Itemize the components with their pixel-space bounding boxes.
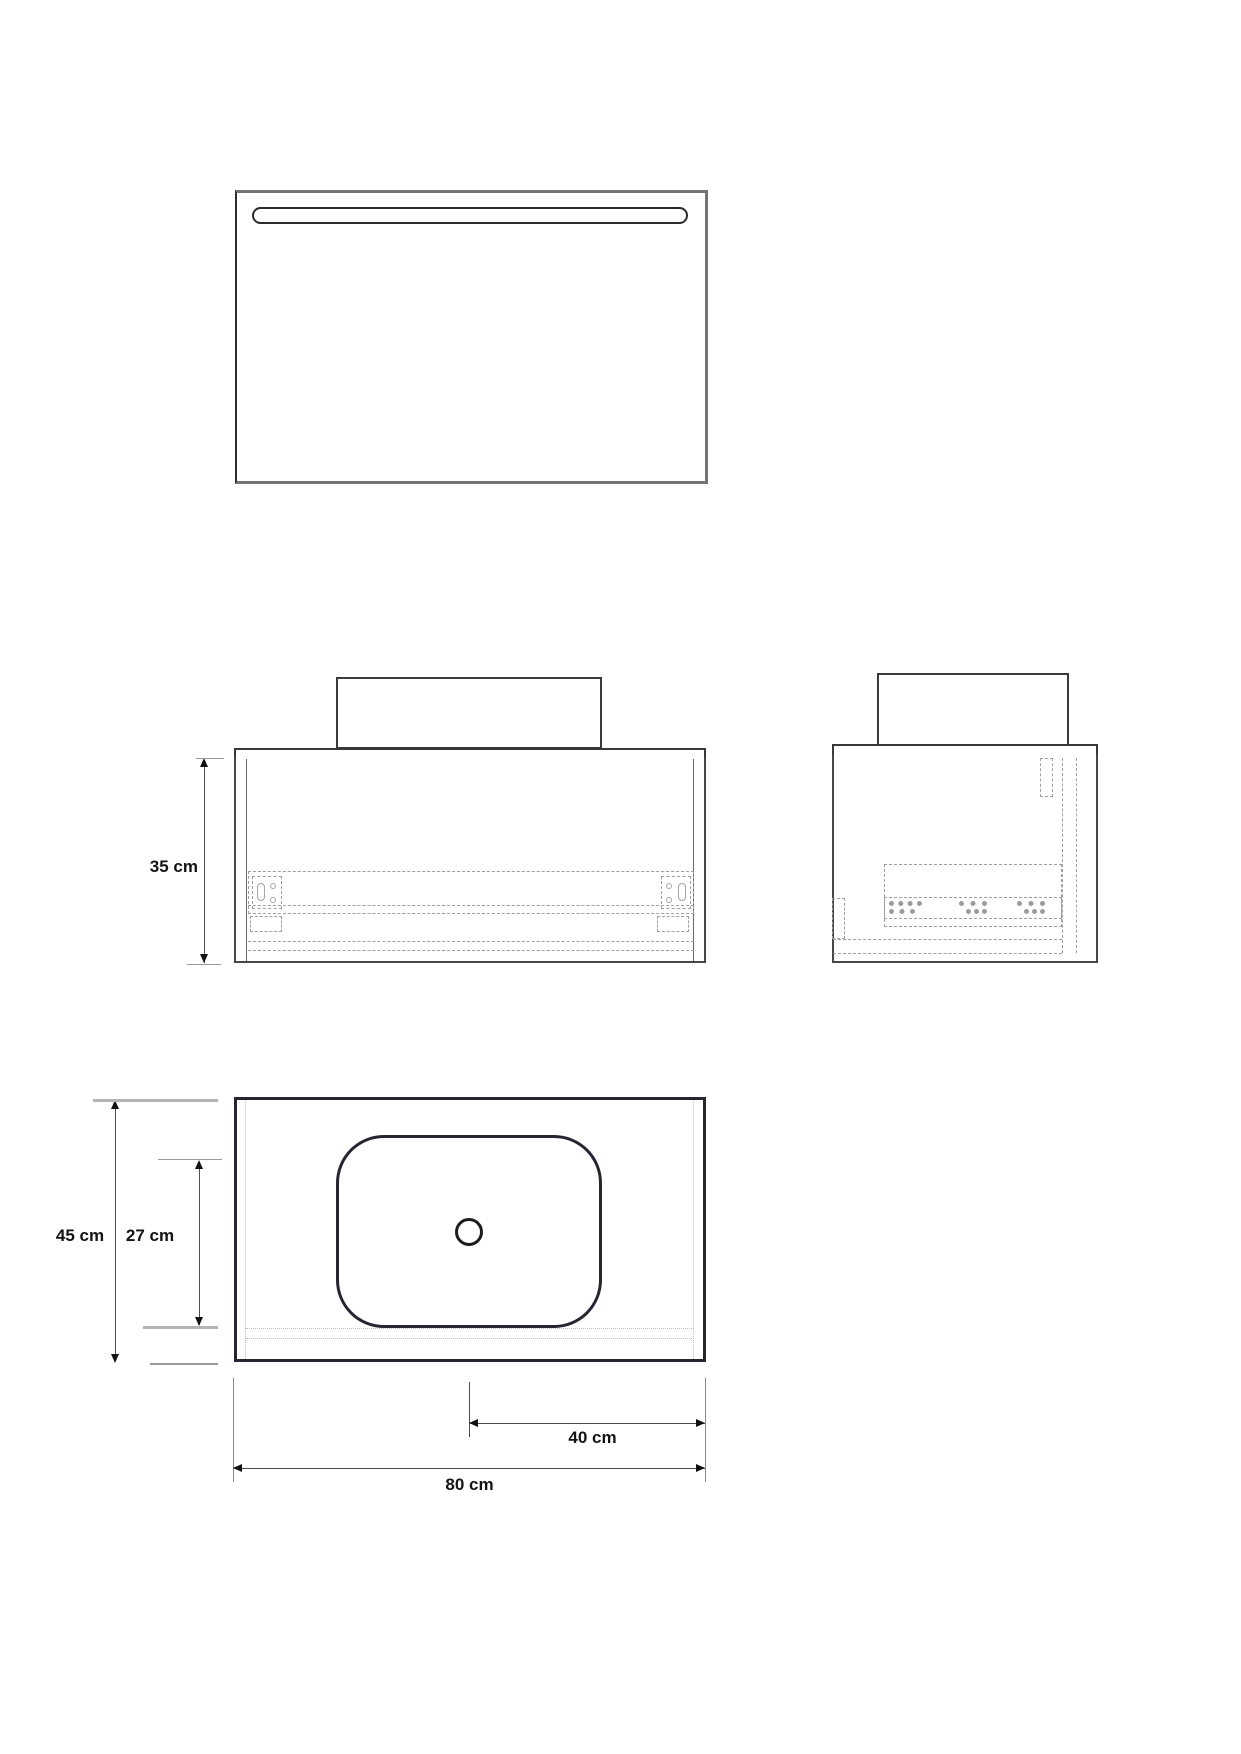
bracket-hole (666, 883, 672, 889)
rail-hole-row (959, 901, 987, 906)
bottom-panel-dashed-line (248, 950, 694, 951)
rail-clip-left (250, 916, 282, 932)
front-panel-dashed (832, 898, 845, 939)
extension-tick (93, 1099, 218, 1102)
bottom-dashed-line (833, 953, 1062, 954)
rail-hole-row (889, 909, 915, 914)
bottom-panel-dashed-line (248, 941, 694, 942)
bracket-slot-right (678, 883, 686, 901)
bracket-hole (270, 897, 276, 903)
bracket-slot-left (257, 883, 265, 901)
arrow-right-icon (696, 1419, 705, 1427)
extension-line (705, 1378, 706, 1482)
dimension-label-basin-depth: 27 cm (120, 1226, 180, 1246)
mirror-frame (235, 190, 708, 484)
back-panel-dashed-line (1062, 758, 1063, 953)
arrow-right-icon (696, 1464, 705, 1472)
drawer-rail-inner-line (248, 905, 694, 906)
bracket-hole (270, 883, 276, 889)
edge-construction-line-left (245, 1100, 246, 1359)
vessel-basin-front (336, 677, 602, 749)
arrow-left-icon (233, 1464, 242, 1472)
rail-hole-row (966, 909, 987, 914)
rail-hole-row (1024, 909, 1045, 914)
front-edge-construction-line (246, 1338, 694, 1339)
extension-line (469, 1382, 470, 1437)
extension-tick (187, 964, 221, 965)
technical-drawing-canvas: 35 cm (0, 0, 1241, 1754)
dimension-line (199, 1163, 200, 1325)
back-panel-dashed-line (1076, 758, 1077, 953)
rail-bracket-right (661, 876, 691, 909)
extension-tick (196, 758, 224, 759)
dimension-line (204, 760, 205, 963)
cabinet-body-side (832, 754, 1098, 963)
extension-tick (158, 1159, 222, 1160)
dimension-label-basin-center-to-edge: 40 cm (555, 1428, 630, 1448)
bottom-dashed-line (833, 939, 1062, 940)
side-panel-line-left (246, 759, 247, 961)
drain-hole (455, 1218, 483, 1246)
arrow-down-icon (195, 1317, 203, 1326)
extension-tick (143, 1326, 218, 1329)
mirror-light-strip (252, 207, 688, 224)
drawer-rail-front (248, 871, 694, 914)
bracket-hole (666, 897, 672, 903)
arrow-up-icon (200, 758, 208, 767)
dimension-label-front-height: 35 cm (138, 857, 198, 877)
rail-hole-row (1017, 901, 1045, 906)
dimension-label-overall-depth: 45 cm (50, 1226, 110, 1246)
dimension-line (115, 1103, 116, 1361)
cabinet-body-front (234, 757, 706, 963)
extension-tick (150, 1363, 218, 1365)
dimension-line (470, 1423, 705, 1424)
dimension-label-overall-width: 80 cm (432, 1475, 507, 1495)
dimension-line (234, 1468, 705, 1469)
front-edge-construction-line (246, 1328, 694, 1329)
rail-hole-row (889, 901, 922, 906)
arrow-left-icon (469, 1419, 478, 1427)
edge-construction-line-right (693, 1100, 694, 1359)
arrow-down-icon (200, 954, 208, 963)
rail-clip-right (657, 916, 689, 932)
vessel-basin-side (877, 673, 1069, 746)
arrow-up-icon (195, 1160, 203, 1169)
arrow-down-icon (111, 1354, 119, 1363)
side-panel-line-right (693, 759, 694, 961)
wall-bracket-dashed (1040, 758, 1053, 797)
